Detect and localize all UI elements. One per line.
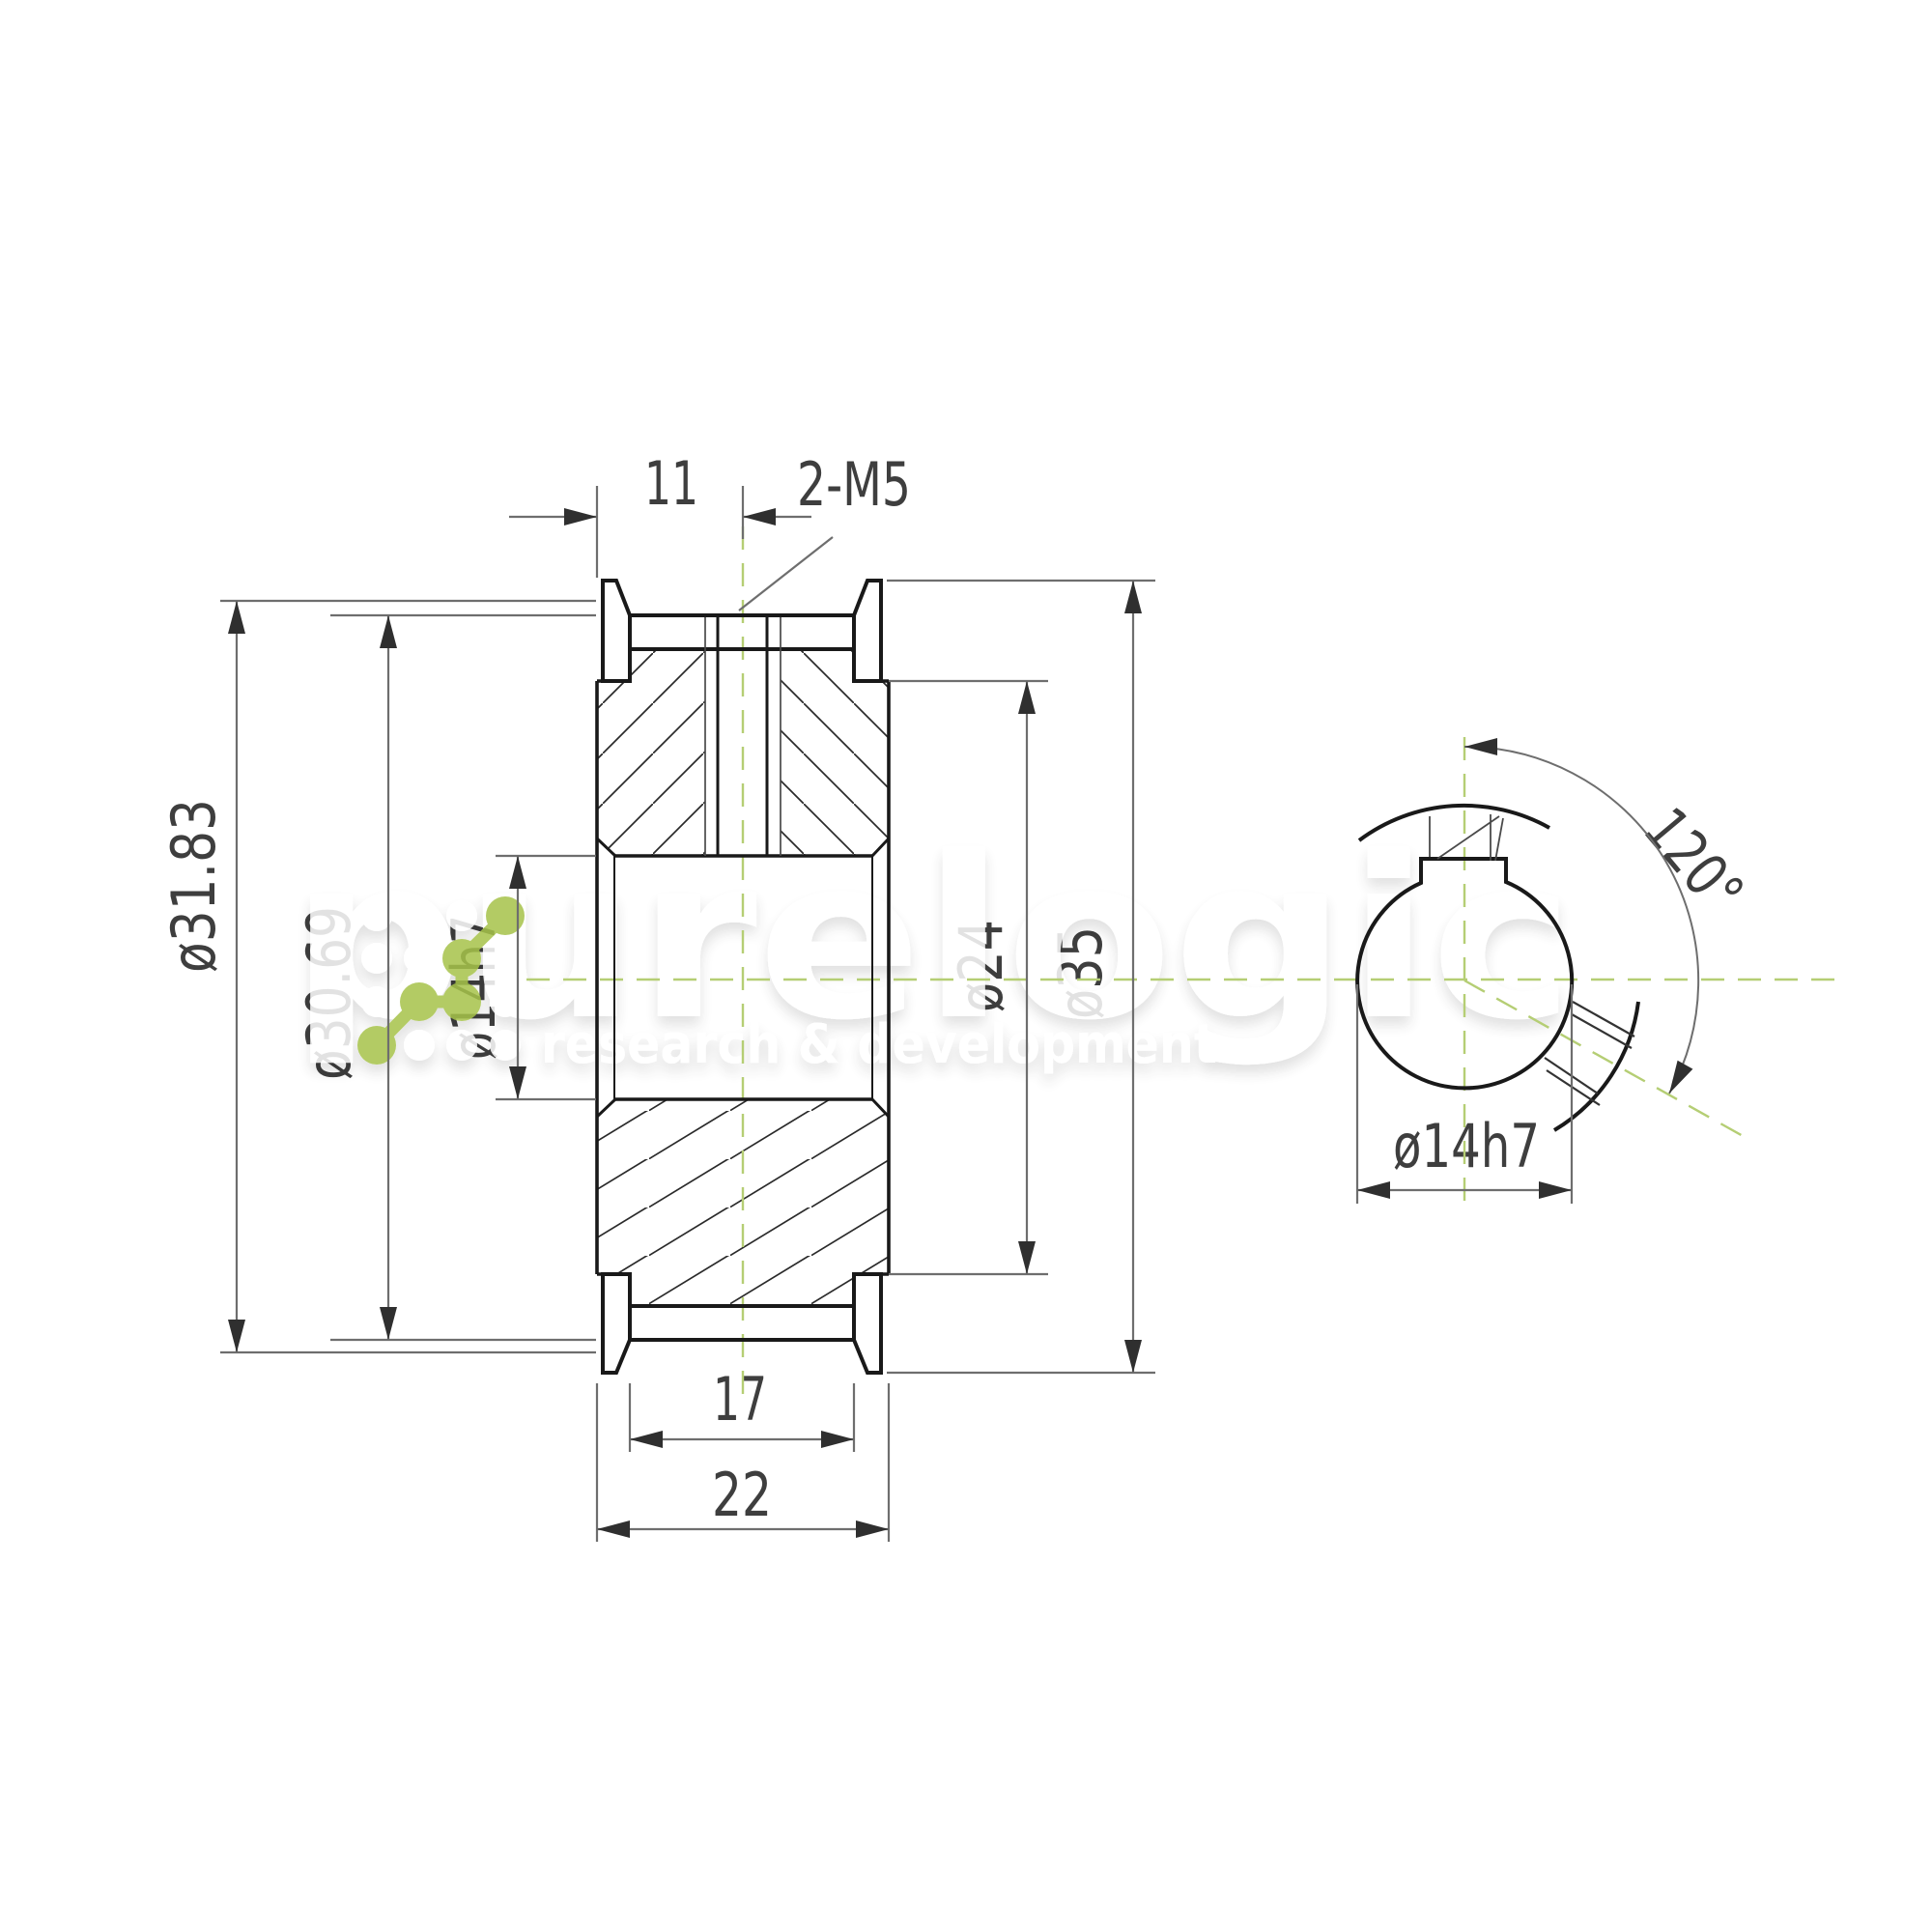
arrow-11-right [743,508,776,526]
arrow-d3069-top [380,615,397,648]
arrow-d14h7-end-left [1357,1181,1390,1199]
dim-d3183-label: ø31.83 [158,799,229,973]
watermark-tagline-text: research & development [541,1013,1217,1076]
arrow-d14h7-bottom [509,1066,526,1099]
arrow-17-left [630,1431,663,1448]
flange-bottom-left [603,1274,630,1373]
arrow-d24-bottom [1018,1241,1036,1274]
arrow-d24-top [1018,681,1036,714]
pulley-technical-drawing: 11 2-M5 ø31.83 ø30.69 ø14h7 ø24 ø35 17 2… [0,0,1932,1932]
dim-120-label: 120° [1631,795,1758,927]
dim-2m5-label: 2-M5 [797,449,911,520]
arrow-120-top [1464,738,1497,755]
arrow-22-left [597,1520,630,1538]
flange-bottom-right [854,1274,881,1373]
arrow-17-right [821,1431,854,1448]
arrow-d3183-bottom [228,1320,245,1352]
arrow-d14h7-end-right [1539,1181,1572,1199]
flange-top-left [603,581,630,681]
dim-d14h7-end-label: ø14h7 [1393,1111,1540,1181]
arrow-d3183-top [228,601,245,634]
dim-17-label: 17 [713,1364,767,1435]
arrow-22-right [856,1520,889,1538]
dim-22-label: 22 [712,1460,772,1530]
arrow-120-bottom [1669,1061,1692,1094]
arrow-d35-top [1124,581,1142,613]
arrow-d3069-bottom [380,1307,397,1340]
flange-top-right [854,581,881,681]
watermark: purelogic research & development [290,809,1575,1076]
arrow-11-left [564,508,597,526]
dim-2m5-leader [739,537,833,611]
drawing-canvas: 11 2-M5 ø31.83 ø30.69 ø14h7 ø24 ø35 17 2… [0,0,1932,1932]
arrow-d35-bottom [1124,1340,1142,1373]
dim-11-label: 11 [644,448,698,519]
